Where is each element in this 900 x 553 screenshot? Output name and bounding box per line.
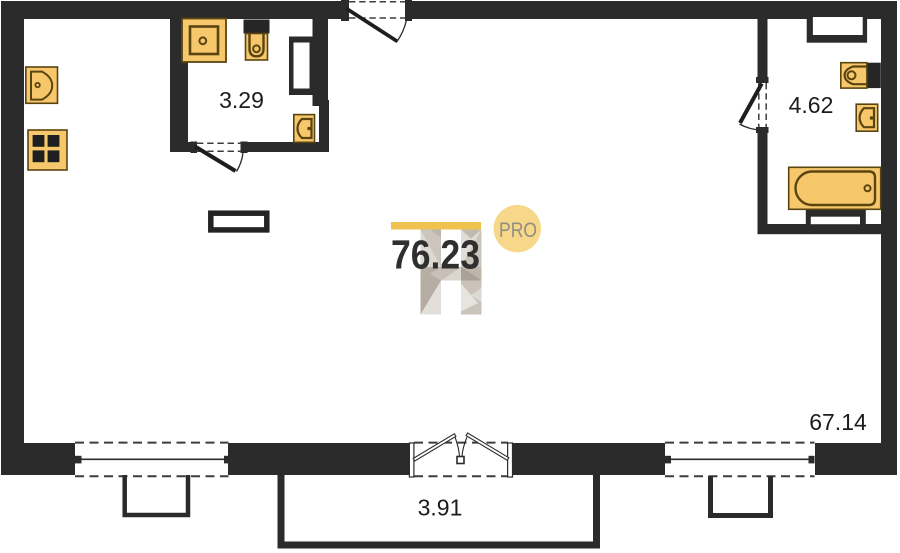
svg-text:PRO: PRO [499,218,537,242]
svg-text:3.29: 3.29 [219,87,264,113]
svg-text:76.23: 76.23 [391,232,480,278]
svg-text:4.62: 4.62 [789,92,834,118]
svg-text:3.91: 3.91 [418,495,463,521]
svg-text:67.14: 67.14 [809,409,867,435]
